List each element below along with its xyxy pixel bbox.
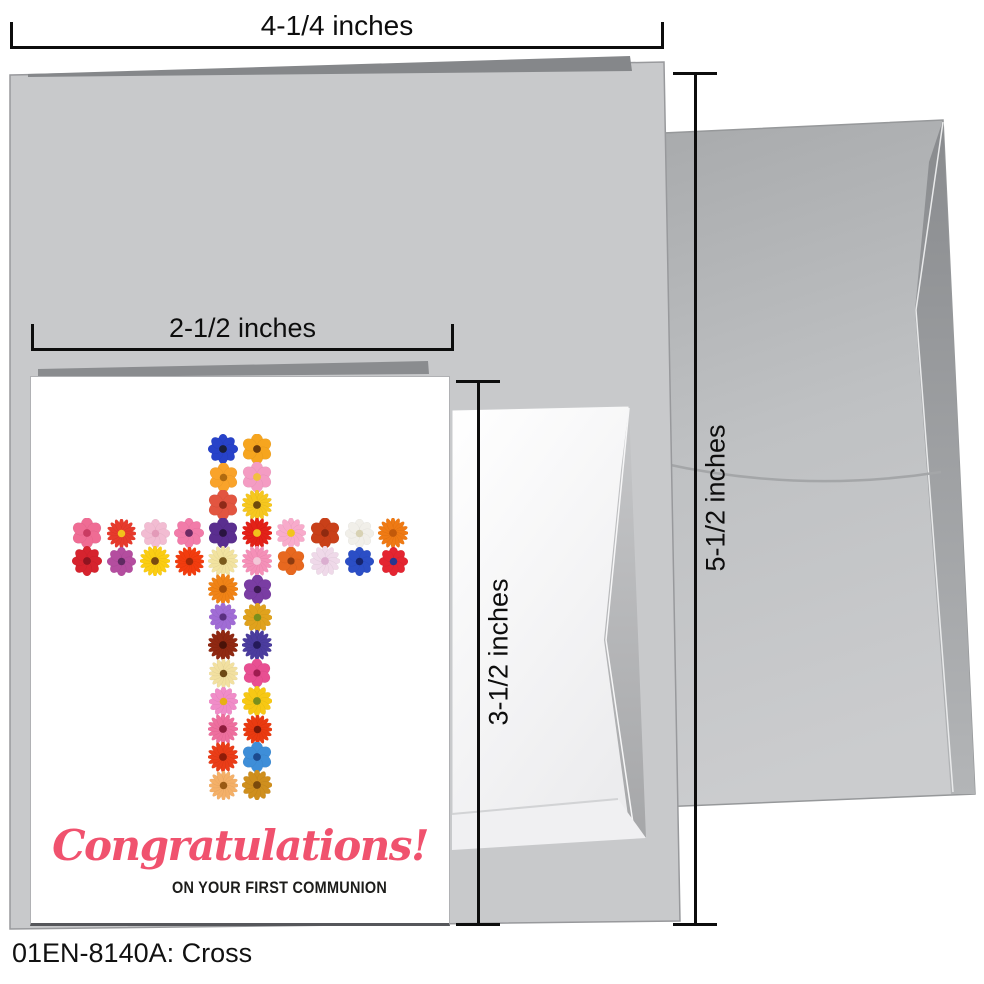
flower — [140, 546, 170, 576]
product-code-label: 01EN-8140A: Cross — [12, 938, 252, 969]
flower — [72, 518, 102, 548]
flower — [276, 518, 306, 548]
flower — [242, 686, 272, 716]
flower — [243, 603, 272, 632]
flower — [209, 659, 238, 688]
flower — [310, 546, 340, 576]
flower — [208, 630, 238, 660]
flower — [242, 434, 272, 464]
flower — [242, 546, 272, 576]
flower — [174, 518, 204, 548]
greeting-script: Congratulations! — [31, 825, 449, 867]
flower — [345, 519, 374, 548]
flower — [242, 630, 272, 660]
flower — [277, 547, 305, 575]
flower — [243, 659, 271, 687]
flower — [107, 547, 136, 576]
flower — [72, 546, 102, 576]
flower — [378, 518, 408, 548]
card-front: Congratulations! ON YOUR FIRST COMMUNION — [30, 376, 450, 926]
flower — [107, 519, 136, 548]
flower — [379, 547, 408, 576]
flower — [208, 714, 238, 744]
flower — [243, 575, 272, 604]
flower — [242, 742, 272, 772]
flower — [242, 490, 272, 520]
flower — [209, 463, 238, 492]
flower — [243, 715, 272, 744]
product-mockup-scene: Congratulations! ON YOUR FIRST COMMUNION… — [0, 0, 984, 984]
flower — [141, 519, 170, 548]
flower — [209, 603, 237, 631]
greeting-subtext: ON YOUR FIRST COMMUNION — [172, 878, 387, 898]
flower — [209, 771, 238, 800]
flower — [242, 770, 272, 800]
flower — [345, 547, 374, 576]
flower — [175, 547, 204, 576]
flower — [208, 434, 238, 464]
flower — [310, 518, 340, 548]
envelope-large — [659, 120, 975, 807]
envelope-small — [452, 406, 646, 850]
flower — [208, 518, 238, 548]
flower — [208, 546, 238, 576]
flower — [242, 518, 272, 548]
flower — [208, 490, 238, 520]
flower — [208, 574, 238, 604]
flower — [242, 462, 272, 492]
flower — [209, 687, 238, 716]
flower — [208, 742, 238, 772]
